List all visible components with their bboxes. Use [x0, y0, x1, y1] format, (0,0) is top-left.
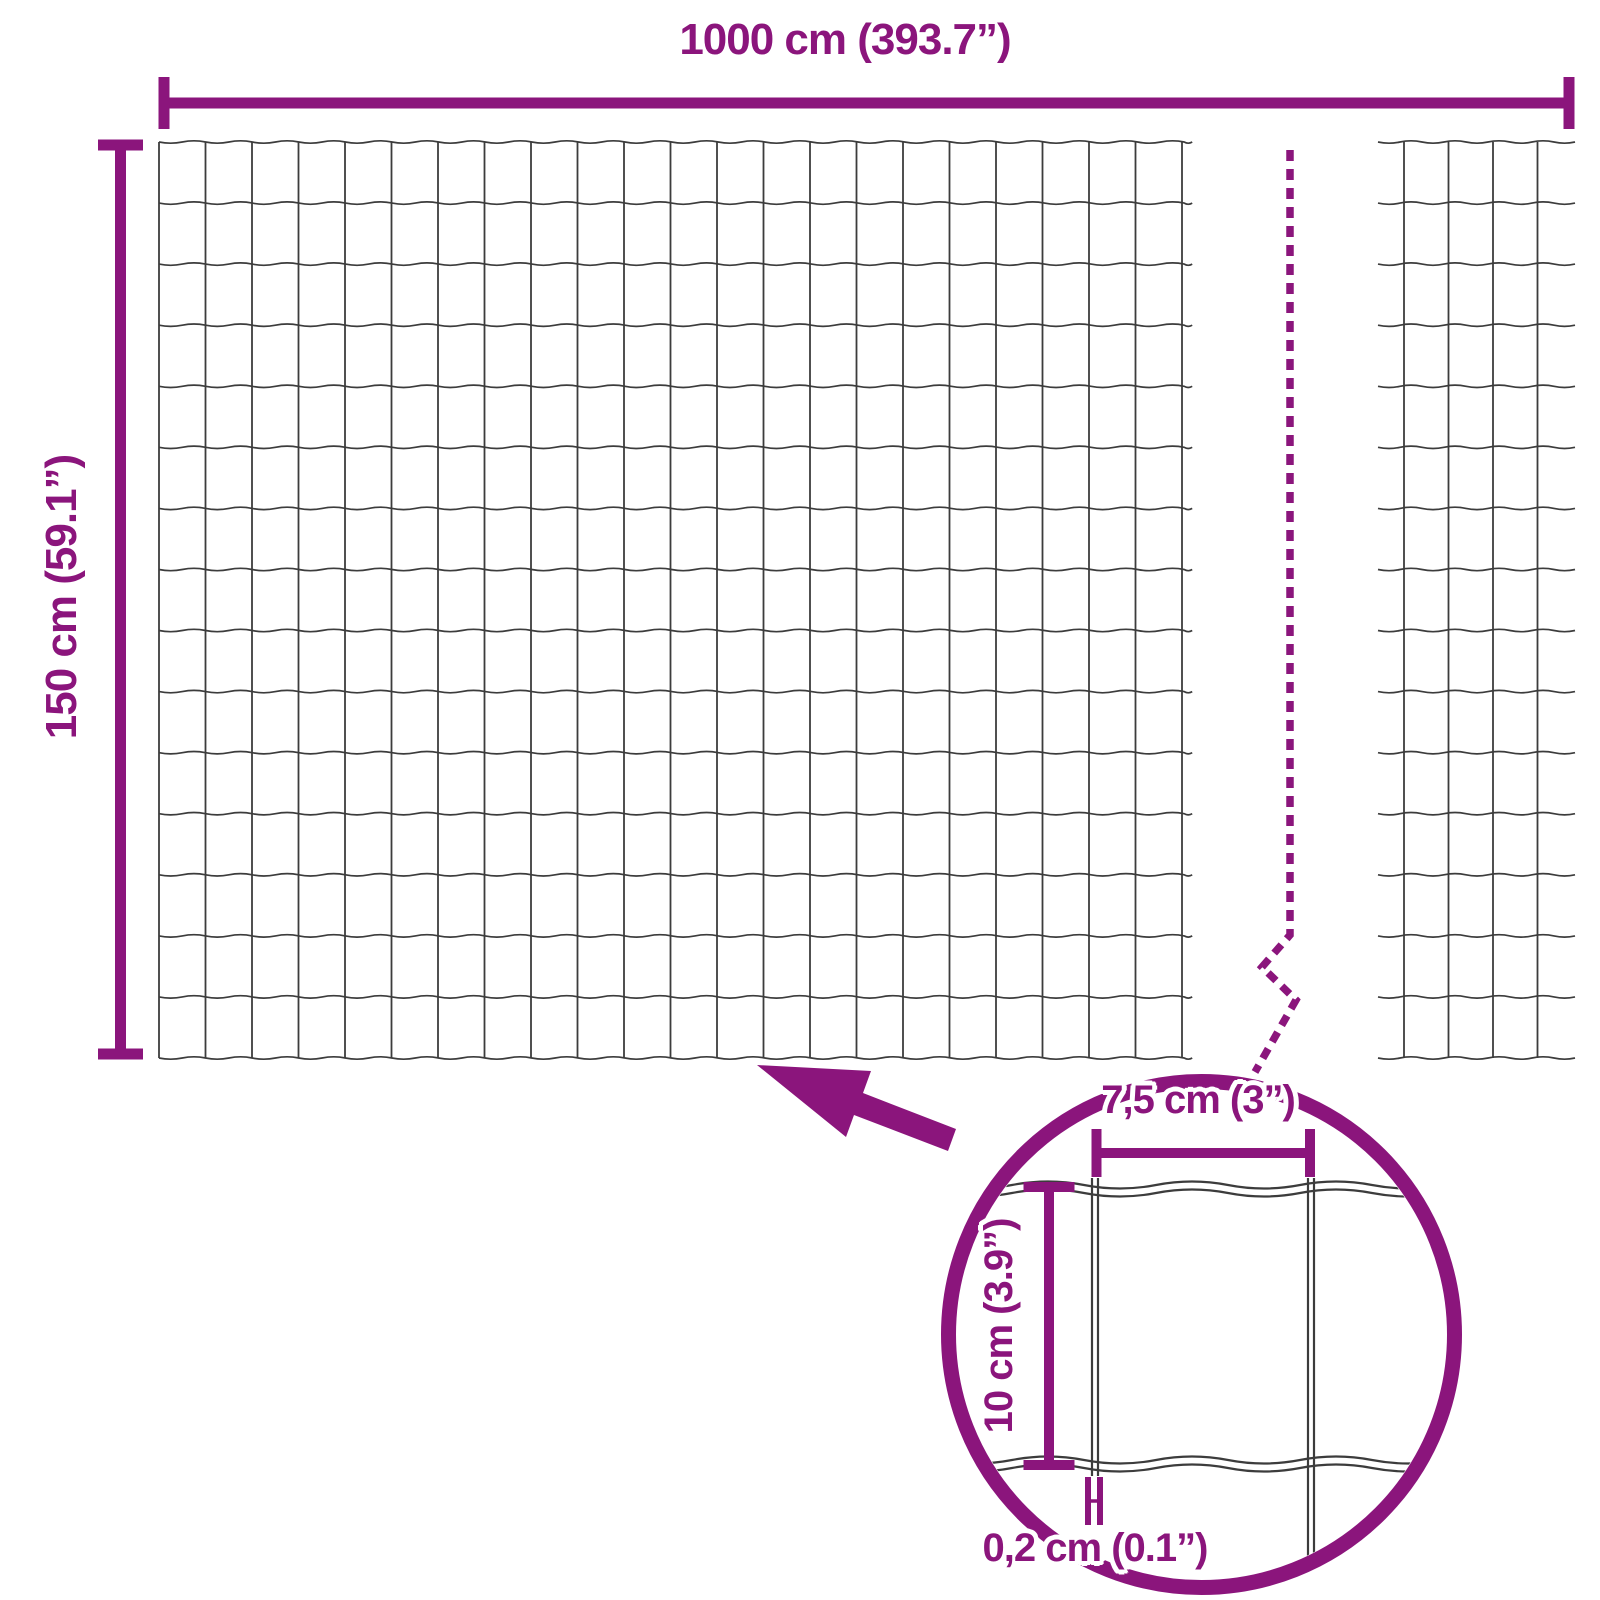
mesh-horizontal-wire [1378, 324, 1575, 326]
mesh-horizontal-wire [1378, 202, 1575, 204]
mesh-horizontal-wire [159, 141, 1192, 143]
mesh-horizontal-wire [1378, 568, 1575, 570]
top-width-dimension [164, 77, 1569, 129]
mesh-horizontal-wire [1378, 1057, 1575, 1059]
mesh-horizontal-wire [1378, 141, 1575, 143]
mesh-horizontal-wire [1378, 629, 1575, 631]
break-indicator-dashed-line [1255, 150, 1296, 1072]
total-height-label: 150 cm (59.1”) [40, 455, 84, 739]
mesh-panel-continuation [1378, 141, 1575, 1059]
mesh-horizontal-wire [159, 202, 1192, 204]
detail-height-dimension [1024, 1187, 1075, 1465]
detail-cell-width-label: 7,5 cm (3”) [1101, 1080, 1295, 1120]
mesh-horizontal-wire [1378, 813, 1575, 815]
detail-horizontal-wire [940, 1190, 1465, 1197]
mesh-horizontal-wire [159, 385, 1192, 387]
mesh-horizontal-wire [159, 752, 1192, 754]
mesh-horizontal-wire [159, 324, 1192, 326]
arrow-shape [757, 1065, 956, 1151]
mesh-horizontal-wire [1378, 752, 1575, 754]
mesh-horizontal-wire [159, 629, 1192, 631]
mesh-horizontal-wire [1378, 935, 1575, 937]
mesh-horizontal-wire [159, 690, 1192, 692]
total-width-label: 1000 cm (393.7”) [679, 18, 1010, 62]
magnifier-arrow [757, 1065, 956, 1151]
mesh-horizontal-wire [159, 263, 1192, 265]
mesh-horizontal-wire [159, 507, 1192, 509]
mesh-horizontal-wire [159, 996, 1192, 998]
diagram-canvas [0, 0, 1600, 1600]
mesh-horizontal-wire [1378, 263, 1575, 265]
mesh-horizontal-wire [159, 446, 1192, 448]
mesh-horizontal-wire [159, 568, 1192, 570]
left-height-dimension [98, 145, 143, 1054]
mesh-horizontal-wire [1378, 385, 1575, 387]
detail-horizontal-wire [940, 1465, 1465, 1472]
mesh-horizontal-wire [1378, 446, 1575, 448]
mesh-horizontal-wire [159, 935, 1192, 937]
wire-thickness-label: 0,2 cm (0.1”) [983, 1528, 1208, 1568]
mesh-panel-main [159, 141, 1192, 1059]
mesh-horizontal-wire [159, 874, 1192, 876]
mesh-horizontal-wire [1378, 996, 1575, 998]
detail-horizontal-wire [940, 1457, 1465, 1464]
mesh-horizontal-wire [1378, 690, 1575, 692]
mesh-horizontal-wire [1378, 874, 1575, 876]
break-dashed-path [1255, 150, 1296, 1072]
mesh-horizontal-wire [159, 1057, 1192, 1059]
detail-cell-height-label: 10 cm (3.9”) [979, 1219, 1019, 1434]
mesh-horizontal-wire [159, 813, 1192, 815]
wire-thickness-marker [1088, 1477, 1100, 1525]
mesh-horizontal-wire [1378, 507, 1575, 509]
detail-horizontal-wire [940, 1182, 1465, 1189]
product-dimension-diagram: 1000 cm (393.7”) 150 cm (59.1”) 7,5 cm (… [0, 0, 1600, 1600]
detail-width-dimension [1097, 1129, 1311, 1177]
